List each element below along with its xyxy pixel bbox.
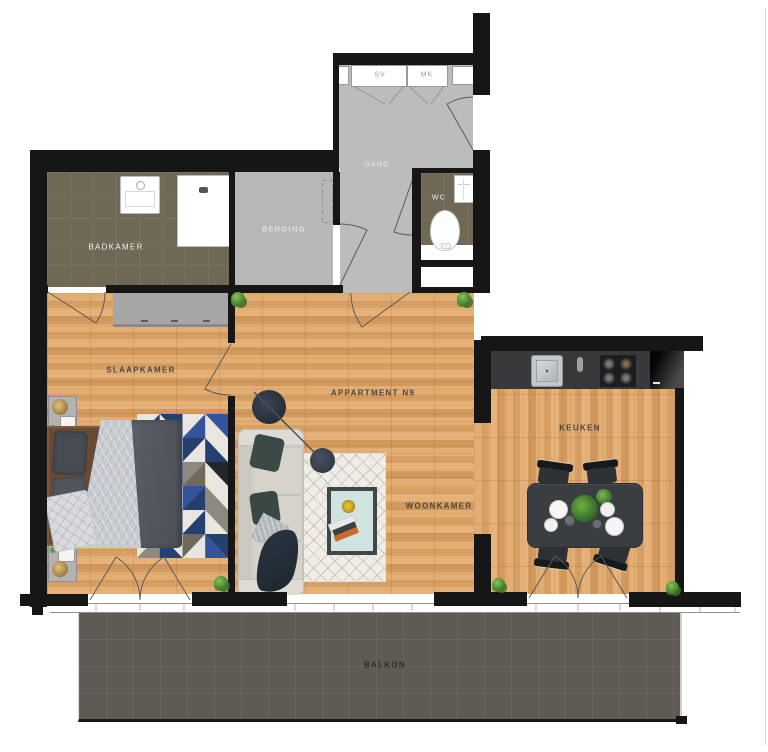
wall-bath-storage-divider: [229, 172, 235, 287]
kitchen-hob: [599, 354, 637, 388]
shower-drain-icon: [199, 187, 208, 193]
wall-bottom-d: [629, 592, 741, 607]
plate: [600, 502, 615, 517]
closet-small-right: [452, 66, 475, 85]
wall-bottom-step: [32, 606, 43, 615]
neighbour-edge-line: [765, 8, 766, 745]
room-label-wc: WC: [432, 195, 446, 202]
wardrobe-handle: [141, 320, 148, 322]
wall-wet-bottom-b: [106, 285, 343, 293]
burner: [603, 358, 615, 370]
wardrobe: [113, 292, 233, 327]
wall-left: [30, 150, 47, 607]
wall-wc-top: [421, 168, 473, 173]
cup: [592, 519, 602, 529]
plate: [544, 518, 558, 532]
table-plant: [571, 495, 598, 522]
bed-pillow-dark: [52, 430, 88, 476]
wall-wet-bottom-a: [30, 285, 48, 293]
toilet-seat-line: [441, 243, 451, 249]
kitchen-counter: [490, 351, 684, 389]
wardrobe-handle: [203, 320, 210, 322]
flower-vase: [342, 500, 355, 513]
sink-faucet-icon: [136, 181, 145, 190]
nightstand-lamp: [52, 399, 68, 415]
wall-top-wetrooms: [30, 150, 335, 172]
wall-bottom-c: [434, 592, 527, 606]
floor-lamp-shade: [310, 448, 335, 473]
wall-wc-left: [412, 168, 421, 293]
wardrobe-handle: [171, 320, 178, 322]
wall-bottom-a: [20, 594, 88, 606]
book-stack: [328, 515, 360, 545]
wall-kitchen-right: [675, 388, 684, 596]
wall-kitchen-stub-upper: [474, 340, 491, 423]
wall-bedroom-stub-lower: [228, 396, 235, 594]
wall-storage-right: [333, 172, 340, 225]
floor-plan: BADKAMER BERGING GANG WC SLAAPKAMER APPA…: [0, 0, 768, 752]
nightstand-lamp: [52, 561, 68, 577]
room-label-slaapkamer: SLAAPKAMER: [106, 366, 175, 375]
room-label-woonkamer: WOONKAMER: [406, 502, 473, 511]
room-label-badkamer: BADKAMER: [88, 243, 143, 252]
wall-kitchen-top: [481, 336, 703, 351]
room-label-keuken: KEUKEN: [559, 424, 601, 433]
sink-basin-line: [125, 191, 155, 207]
wall-shaft-divider: [421, 260, 473, 267]
plate: [605, 517, 624, 536]
kitchen-tall-appliance: [650, 351, 684, 389]
wc-basin: [454, 175, 474, 203]
closet-label-mk: MK: [421, 72, 434, 79]
kitchen-sink: [531, 355, 563, 387]
plant: [214, 576, 228, 590]
wall-entry-pillar: [473, 13, 490, 95]
bathroom-sink: [120, 176, 160, 214]
closet-label-sv: SV: [374, 72, 385, 79]
plant: [666, 581, 679, 594]
wall-hall-left: [333, 65, 339, 172]
wall-bottom-b: [192, 592, 287, 606]
toilet: [430, 210, 460, 251]
wc-basin-line2: [463, 179, 464, 199]
wc-basin-line: [458, 184, 470, 185]
wall-hall-right: [473, 150, 490, 293]
floor-hall-lower: [340, 168, 412, 293]
plant: [231, 292, 245, 306]
cup: [564, 515, 575, 526]
shower-tray: [177, 175, 233, 247]
sink-drain: [544, 368, 550, 374]
kitchen-faucet: [577, 357, 583, 372]
burner: [620, 358, 632, 370]
plant: [492, 578, 505, 591]
plant: [457, 292, 471, 306]
wall-balcony-corner: [676, 716, 687, 724]
room-label-gang: GANG: [364, 162, 390, 169]
coffee-table: [327, 487, 377, 555]
couch: [238, 429, 304, 595]
apartment-title: APPARTMENT N9: [331, 389, 415, 398]
room-label-berging: BERGING: [262, 225, 306, 234]
floor-lamp-base: [252, 390, 286, 424]
appliance-handle: [653, 382, 660, 384]
shaft-lower: [421, 267, 473, 287]
wall-kitchen-stub-lower: [474, 534, 491, 594]
wall-hall-top: [333, 53, 473, 65]
dining-table: [527, 483, 643, 548]
bed: [47, 419, 182, 549]
burner: [620, 372, 632, 384]
room-label-balkon: BALKON: [364, 661, 406, 670]
burner: [603, 372, 615, 384]
